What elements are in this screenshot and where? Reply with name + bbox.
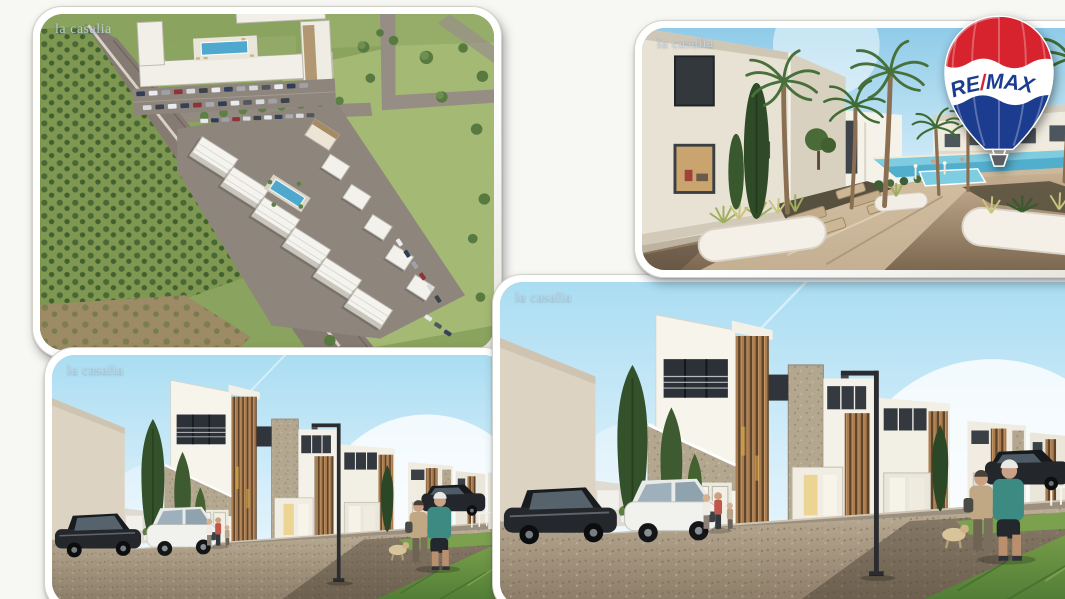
- remax-balloon-svg: RE/MAX: [936, 14, 1062, 167]
- photo-card-street-small: la casalia: [44, 347, 514, 599]
- balloon-basket: [990, 155, 1007, 167]
- street-photo-large: la casalia: [500, 282, 1065, 599]
- remax-balloon-logo: RE/MAX: [936, 14, 1062, 164]
- street-photo-small: la casalia: [52, 355, 506, 599]
- photo-card-aerial: la casalia: [32, 6, 502, 358]
- aerial-photo: la casalia: [40, 14, 494, 350]
- street-render-small-svg: [52, 355, 506, 599]
- photo-card-street-large: la casalia: [492, 274, 1065, 599]
- street-render-large-svg: [500, 282, 1065, 599]
- collage-canvas: la casalia la casalia la casalia: [0, 0, 1065, 599]
- aerial-render-svg: [40, 14, 494, 350]
